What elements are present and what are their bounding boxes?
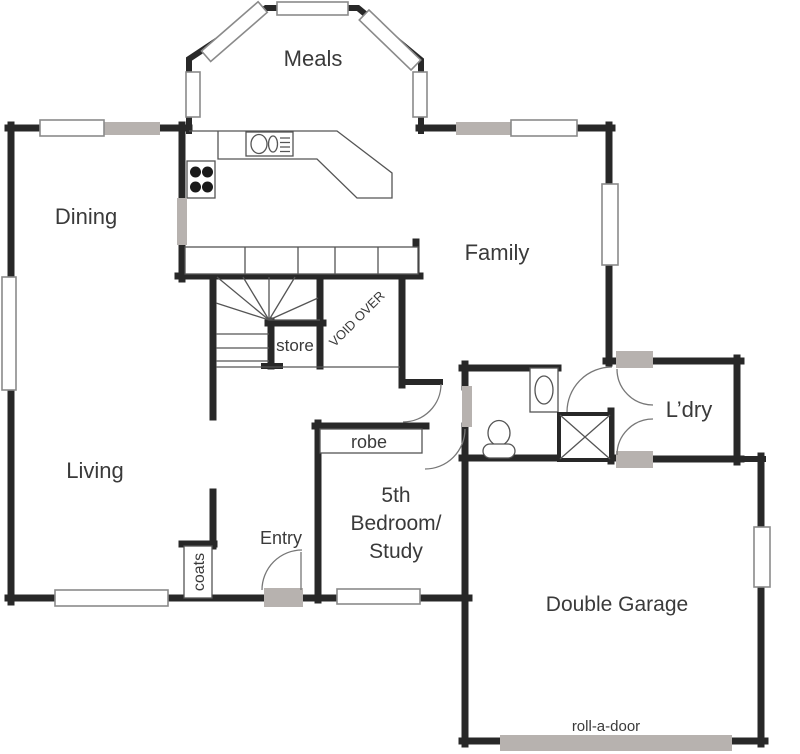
entry-threshold <box>264 588 303 607</box>
hall-door-swing <box>403 384 441 422</box>
bay-window-top <box>277 2 348 15</box>
roll-a-door-bar <box>500 735 732 751</box>
bedroom-bottom-window <box>337 589 420 604</box>
sink <box>246 132 293 156</box>
label-family: Family <box>465 240 530 265</box>
floor-plan: Meals Dining Family Living L’dry Double … <box>0 0 800 754</box>
label-living: Living <box>66 458 123 483</box>
living-bottom-window <box>55 590 168 606</box>
powder-door-threshold <box>462 386 472 427</box>
dining-top-opening <box>104 122 160 135</box>
label-bedroom5-line3: Study <box>369 540 423 563</box>
label-void-over: VOID OVER <box>326 288 388 350</box>
label-meals: Meals <box>284 46 343 71</box>
cooktop-burner <box>202 167 213 178</box>
label-coats: coats <box>191 553 208 591</box>
family-east-window <box>602 184 618 265</box>
kitchen-west-opening <box>177 198 187 245</box>
label-bedroom5-line1: 5th <box>381 484 410 507</box>
kitchen <box>185 131 418 274</box>
garage-east-window <box>754 527 770 587</box>
laundry-door-swing <box>617 369 653 405</box>
label-bedroom5-line2: Bedroom/ <box>350 512 441 535</box>
living-west-window <box>2 277 16 390</box>
cooktop-burner <box>202 182 213 193</box>
cooktop-burner <box>190 182 201 193</box>
stair-winder-line <box>216 303 269 320</box>
exterior-walls <box>8 8 765 744</box>
toilet-bowl <box>488 421 510 446</box>
family-top-opening <box>456 122 512 135</box>
stair-winder-line <box>217 277 269 320</box>
basin-vanity <box>530 368 558 412</box>
vestibule-top-threshold <box>616 351 653 368</box>
garage-access-door-swing <box>617 419 653 455</box>
bay-window-right-angled <box>359 10 421 70</box>
bedroom-door-swing <box>425 429 465 469</box>
powder-room-fixtures <box>483 368 611 460</box>
entry-door-swing <box>262 550 302 590</box>
label-robe: robe <box>351 432 387 452</box>
dining-top-window <box>40 120 104 136</box>
label-store: store <box>276 336 314 355</box>
label-roll-a-door: roll-a-door <box>572 718 640 735</box>
kitchen-cabinets <box>185 247 418 274</box>
bay-window-left-angled <box>201 2 267 62</box>
label-garage: Double Garage <box>546 593 688 616</box>
vestibule-bottom-threshold <box>616 451 653 468</box>
bay-window-right-vertical <box>413 72 427 117</box>
label-laundry: L’dry <box>666 397 712 422</box>
room-labels: Meals Dining Family Living L’dry Double … <box>55 46 712 735</box>
label-entry: Entry <box>260 528 302 548</box>
cooktop <box>187 161 215 198</box>
bay-window-left-vertical <box>186 72 200 117</box>
label-dining: Dining <box>55 204 117 229</box>
cooktop-burner <box>190 167 201 178</box>
powder-door-swing <box>567 367 612 412</box>
floor-plan-canvas: Meals Dining Family Living L’dry Double … <box>0 0 800 754</box>
toilet-cistern <box>483 444 515 458</box>
family-top-window <box>511 120 577 136</box>
